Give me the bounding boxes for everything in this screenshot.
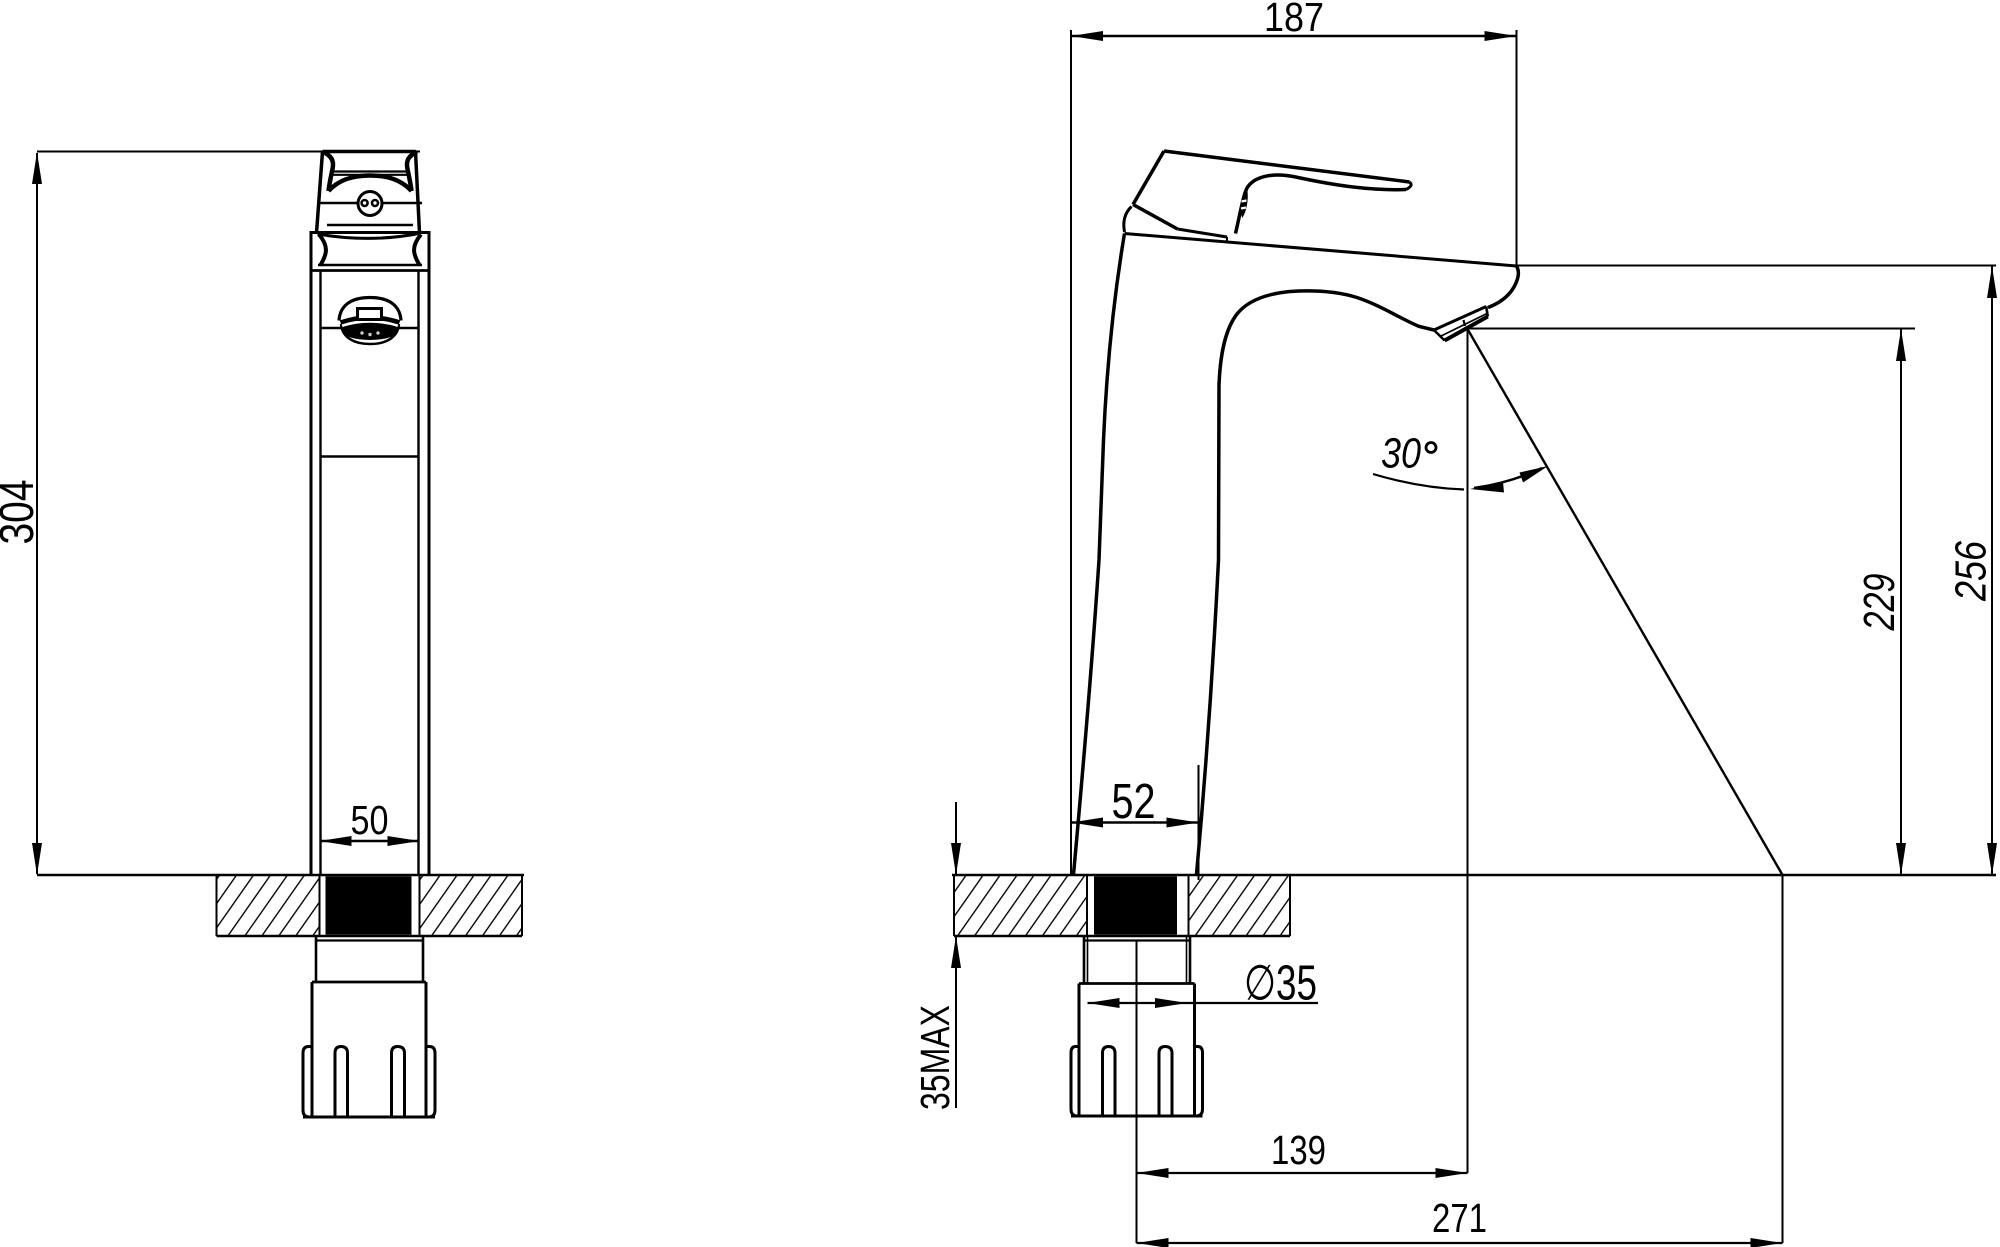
svg-text:30: 30 — [1381, 430, 1421, 478]
svg-text:52: 52 — [1112, 775, 1156, 829]
svg-text:304: 304 — [0, 480, 44, 545]
svg-text:256: 256 — [1947, 541, 1996, 602]
svg-text:∅35: ∅35 — [1244, 957, 1317, 1011]
svg-text:229: 229 — [1855, 574, 1904, 632]
svg-text:50: 50 — [351, 797, 389, 843]
svg-text:35MAX: 35MAX — [912, 1005, 958, 1110]
svg-text:187: 187 — [1264, 0, 1324, 40]
svg-text:271: 271 — [1432, 1195, 1487, 1241]
svg-text:139: 139 — [1271, 1127, 1326, 1173]
